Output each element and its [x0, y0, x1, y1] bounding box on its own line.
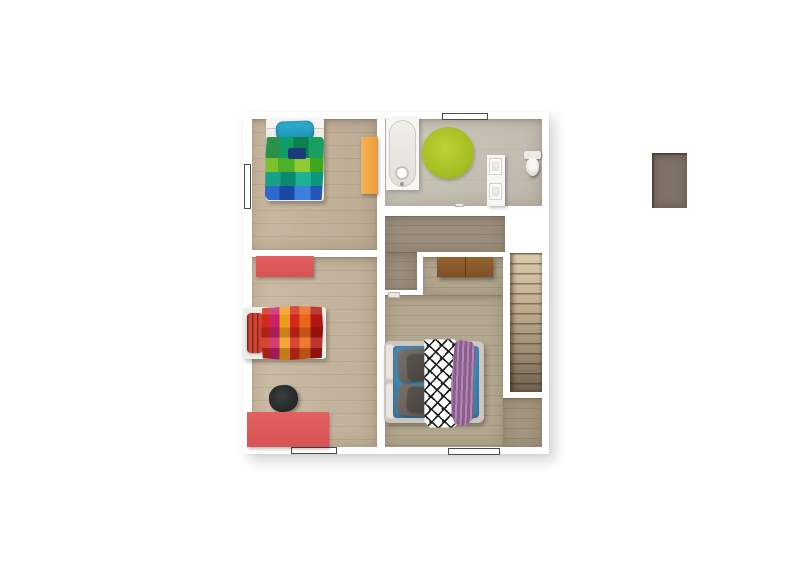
window-master-bedroom-bottom: [448, 448, 500, 455]
bathtub: [386, 117, 419, 190]
wooden-chest: [437, 257, 493, 277]
toilet-bowl: [526, 158, 539, 176]
staircase: [510, 253, 542, 392]
duvet-navy-patch: [288, 148, 306, 159]
coral-desk: [247, 412, 329, 447]
single-bed-2-duvet: [261, 306, 323, 360]
toilet-nook-floor: [652, 153, 687, 208]
master-bedroom-floor-under-stairs: [503, 398, 542, 447]
bathtub-drain: [400, 182, 404, 186]
chest-divider: [465, 257, 466, 277]
floor-plan-canvas: [0, 0, 800, 568]
sink-basin: [489, 183, 502, 200]
orange-dresser: [361, 137, 378, 194]
single-bed-2-pillow: [247, 313, 263, 353]
duvet-stripe: [265, 158, 324, 172]
hallway-floor-strip: [385, 216, 505, 252]
window-bedroom1-left: [244, 164, 251, 209]
duvet-stripe: [265, 186, 324, 200]
sink-vanity: [487, 155, 505, 206]
toilet: [524, 151, 541, 178]
duvet-stripe: [265, 172, 324, 186]
door-threshold-master-bedroom: [388, 292, 400, 298]
sink-basin-inner: [492, 187, 499, 196]
hallway-floor-column: [385, 252, 417, 290]
window-bedroom2-bottom: [291, 447, 337, 454]
door-threshold-bathroom: [455, 203, 464, 207]
round-green-rug: [422, 127, 474, 179]
floor-plan: [243, 112, 549, 454]
window-bathroom-top: [442, 113, 488, 120]
coral-dresser: [256, 256, 314, 277]
bathtub-faucet: [395, 166, 409, 180]
sink-basin: [489, 158, 502, 175]
sink-basin-inner: [492, 162, 499, 171]
single-bed-1-duvet: [265, 137, 324, 200]
